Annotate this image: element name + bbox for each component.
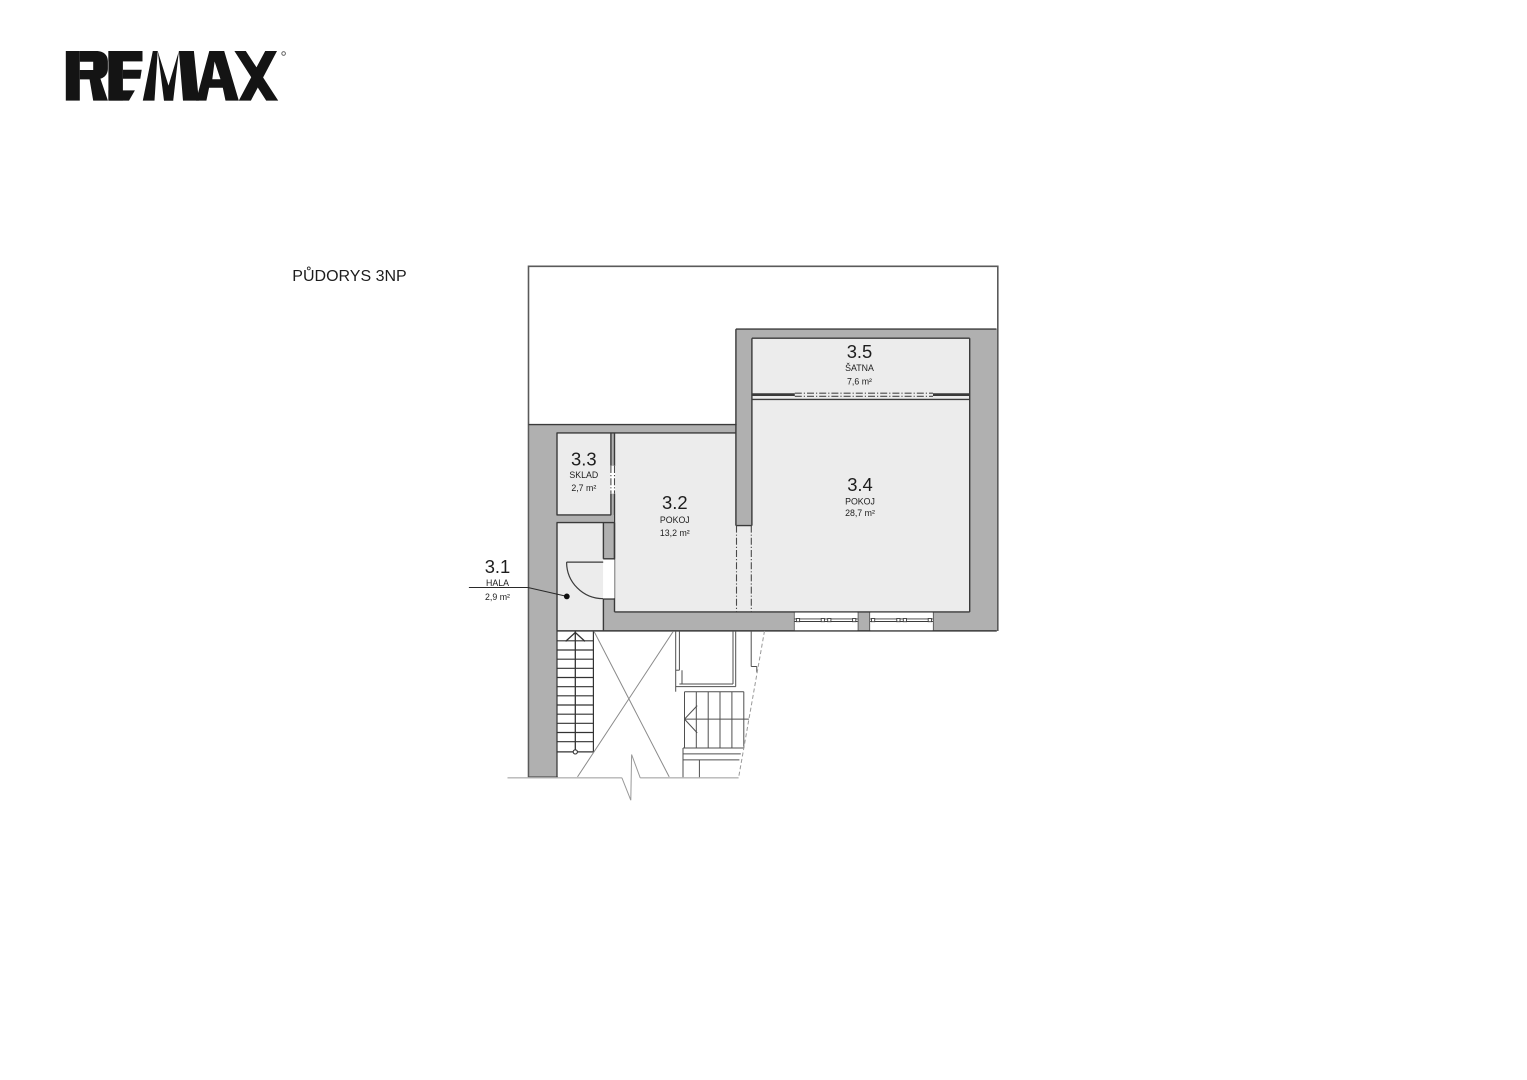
svg-text:7,6 m²: 7,6 m² bbox=[847, 377, 872, 387]
svg-text:HALA: HALA bbox=[486, 578, 509, 588]
svg-text:3.3: 3.3 bbox=[571, 449, 597, 470]
svg-text:13,2 m²: 13,2 m² bbox=[660, 528, 690, 538]
svg-text:POKOJ: POKOJ bbox=[660, 515, 690, 525]
svg-text:3.2: 3.2 bbox=[662, 492, 688, 513]
svg-text:28,7 m²: 28,7 m² bbox=[845, 508, 875, 518]
svg-text:ŠATNA: ŠATNA bbox=[845, 363, 874, 373]
svg-text:3.4: 3.4 bbox=[847, 474, 873, 495]
svg-text:3.5: 3.5 bbox=[847, 341, 873, 362]
svg-text:POKOJ: POKOJ bbox=[845, 496, 875, 506]
svg-text:3.1: 3.1 bbox=[485, 556, 511, 577]
svg-text:SKLAD: SKLAD bbox=[569, 470, 598, 480]
svg-text:PŮDORYS 3NP: PŮDORYS 3NP bbox=[292, 266, 406, 285]
svg-text:2,7 m²: 2,7 m² bbox=[571, 483, 596, 493]
svg-text:2,9 m²: 2,9 m² bbox=[485, 592, 510, 602]
